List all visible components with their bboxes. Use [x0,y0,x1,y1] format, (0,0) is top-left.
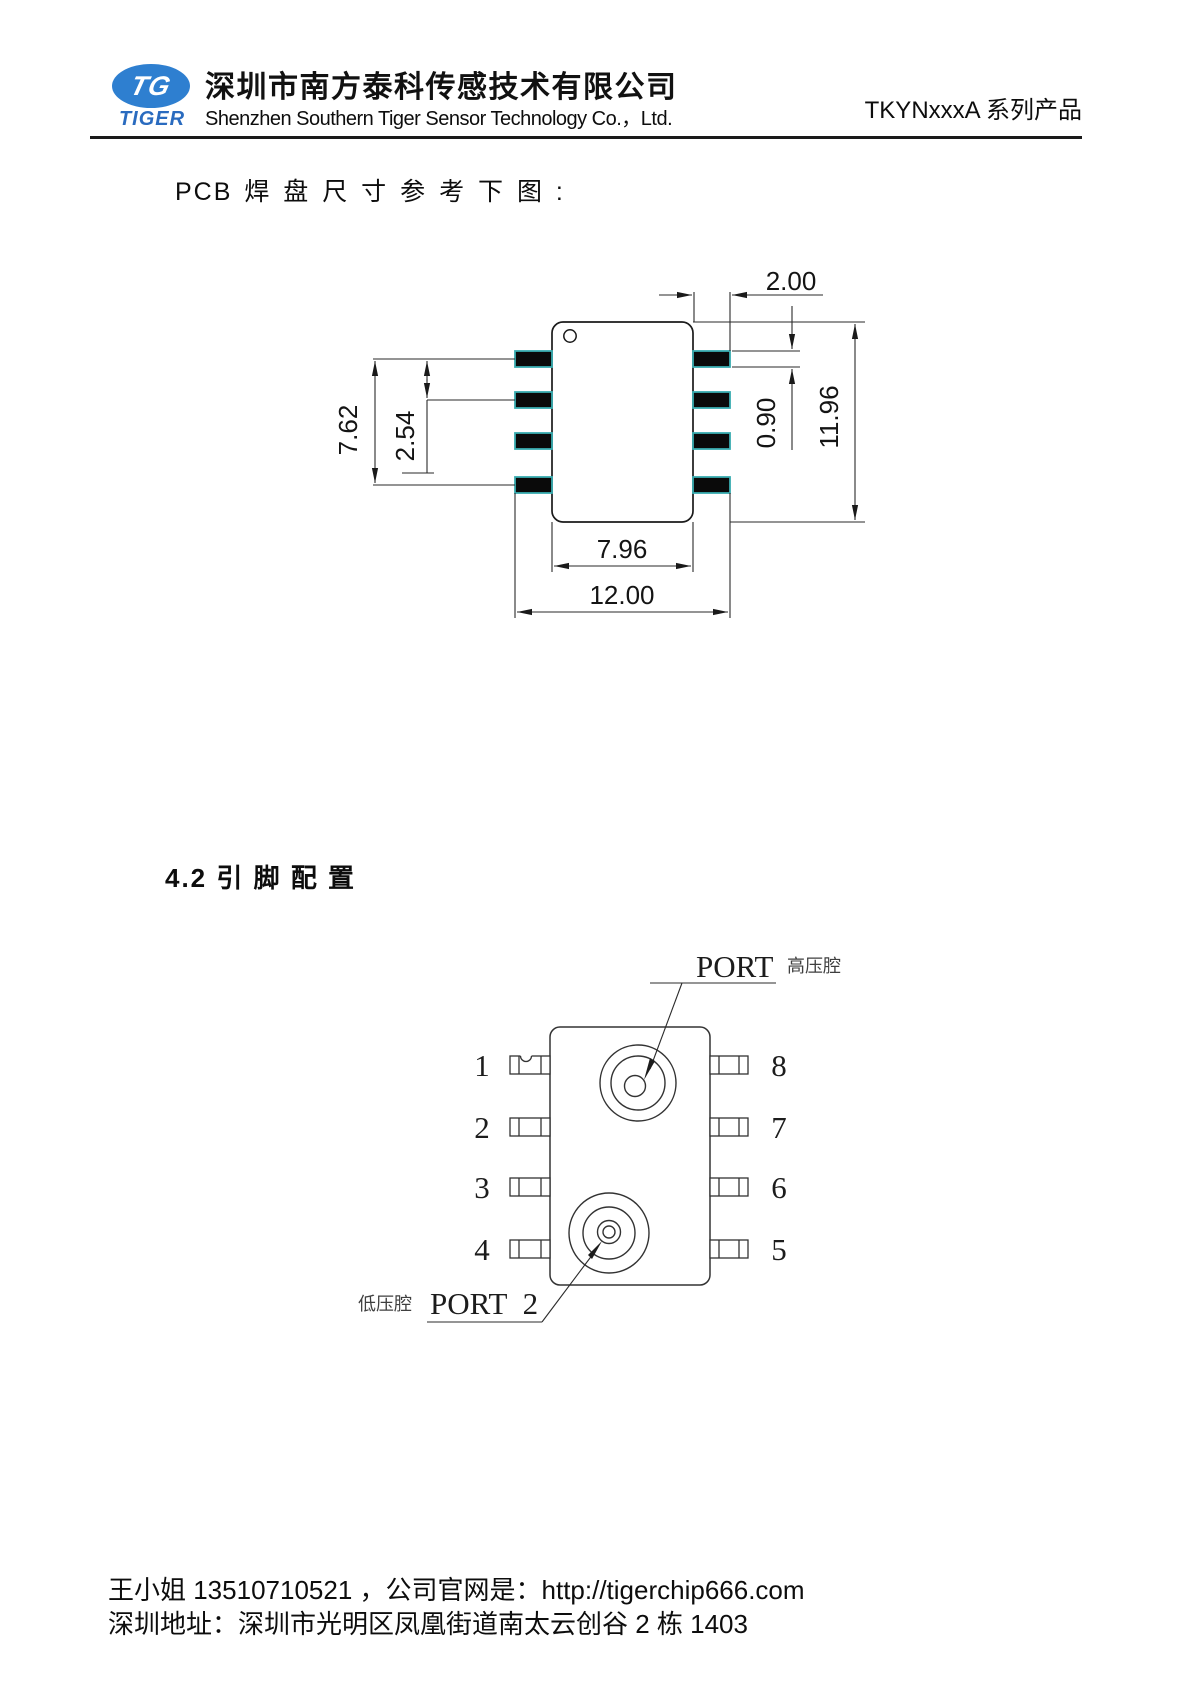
footer-contact-line: 王小姐 13510710521 ，公司官网是：http://tigerchip6… [108,1570,805,1607]
port1-label: PORT [696,949,773,984]
pad [515,433,552,449]
pin-number: 8 [771,1048,787,1083]
pad [515,392,552,408]
dim-overall-height-label: 11.96 [814,385,844,448]
pin-3 [510,1178,550,1196]
pins-left [510,1056,550,1258]
port1-note: 高压腔 [787,956,841,976]
pin-configuration-diagram: PORT 高压腔 PORT 2 低压腔 1 2 3 4 8 7 6 5 [330,930,870,1350]
pad [515,477,552,493]
dim-pad-row-span-label: 7.62 [333,405,363,456]
company-name-cn: 深圳市南方泰科传感技术有限公司 [205,62,678,106]
pins-right [710,1056,748,1258]
pad [693,477,730,493]
pin-6 [710,1178,748,1196]
company-logo-icon: TG [112,64,190,108]
footer-address-line: 深圳地址：深圳市光明区凤凰街道南太云创谷 2 栋 1403 [108,1604,748,1641]
port1-high-pressure [600,1045,676,1121]
logo-wordmark: TIGER [106,108,198,131]
pin-number: 3 [474,1170,490,1205]
pcb-pads-right [693,351,730,493]
dim-pad-pitch-label: 2.54 [390,411,420,462]
product-series-label: TKYNxxxA 系列产品 [782,90,1082,125]
logo-monogram: TG [127,71,174,102]
pad [515,351,552,367]
dim-pad-width-label: 2.00 [766,266,817,296]
port2-note: 低压腔 [358,1294,412,1314]
section-title-4-2: 4.2 引 脚 配 置 [165,858,356,895]
pin-number: 4 [474,1232,490,1267]
company-name-en: Shenzhen Southern Tiger Sensor Technolog… [205,102,672,131]
port2-low-pressure [569,1193,649,1273]
pin-number: 2 [474,1110,490,1145]
pin-numbers-right: 8 7 6 5 [771,1048,787,1267]
dim-overall-width-label: 12.00 [589,580,654,610]
pin1-marker-icon [564,330,576,342]
pcb-body-outline [552,322,693,522]
pin-7 [710,1118,748,1136]
pcb-pad-note: PCB 焊 盘 尺 寸 参 考 下 图 : [175,172,565,208]
pin-number: 6 [771,1170,787,1205]
dim-body-width-label: 7.96 [597,534,648,564]
pin-1 [510,1056,550,1074]
pin-numbers-left: 1 2 3 4 [474,1048,490,1267]
port2-label: PORT 2 [430,1286,538,1321]
header-divider [90,136,1082,139]
pin-4 [510,1240,550,1258]
pin-2 [510,1118,550,1136]
dim-pad-height-label: 0.90 [751,398,781,449]
pcb-footprint-drawing: 2.00 0.90 11.96 7.62 2.54 7.96 12.00 [330,240,870,630]
pin-8 [710,1056,748,1074]
pin-number: 5 [771,1232,787,1267]
pad [693,392,730,408]
pin-number: 7 [771,1110,787,1145]
datasheet-page: TG TIGER 深圳市南方泰科传感技术有限公司 Shenzhen Southe… [0,0,1190,1683]
pcb-pads-left [515,351,552,493]
pin-number: 1 [474,1048,490,1083]
pad [693,351,730,367]
pad [693,433,730,449]
pin-5 [710,1240,748,1258]
